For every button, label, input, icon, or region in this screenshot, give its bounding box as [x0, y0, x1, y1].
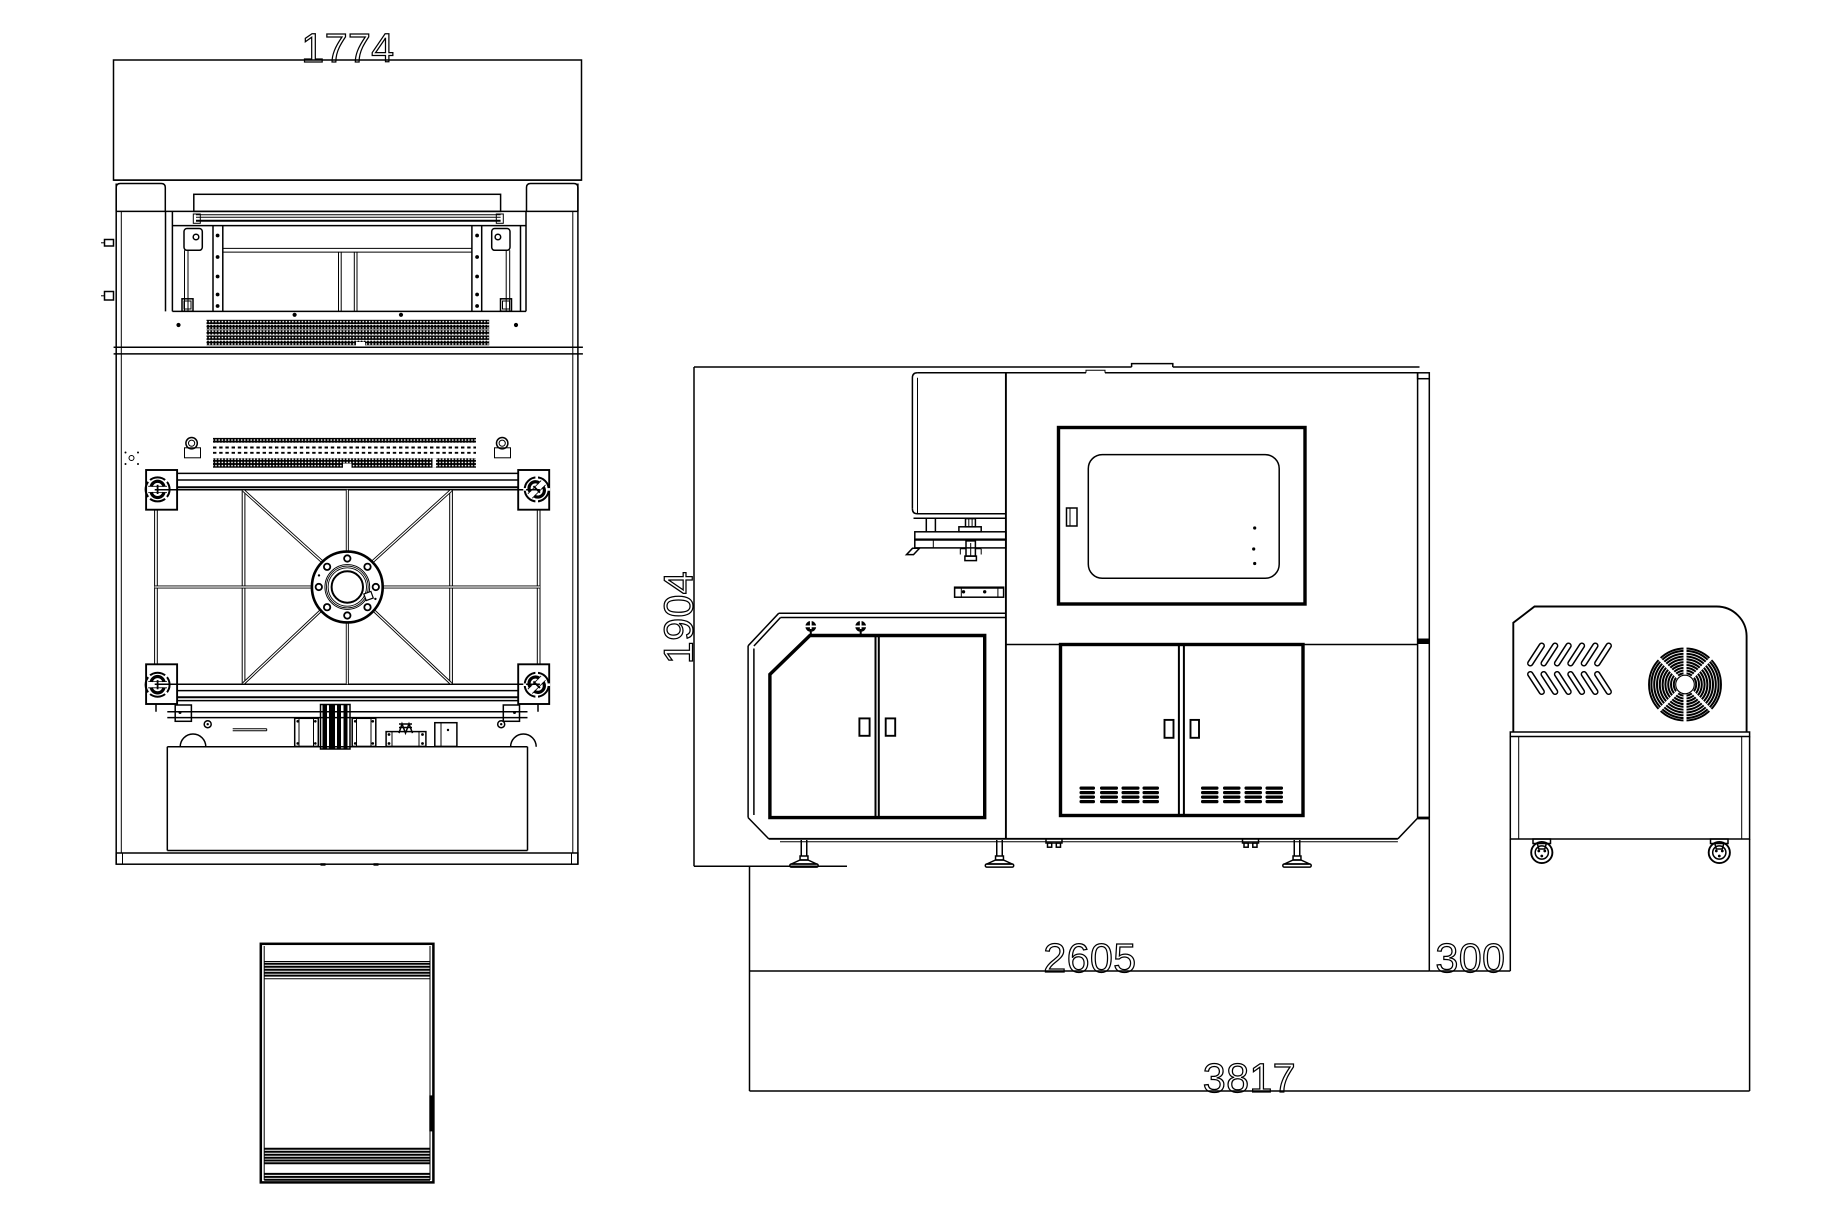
svg-text:3817: 3817 [1203, 1055, 1296, 1101]
svg-text:2605: 2605 [1043, 935, 1136, 981]
svg-text:300: 300 [1436, 935, 1506, 981]
svg-text:1904: 1904 [656, 571, 702, 664]
svg-text:1774: 1774 [301, 25, 394, 71]
